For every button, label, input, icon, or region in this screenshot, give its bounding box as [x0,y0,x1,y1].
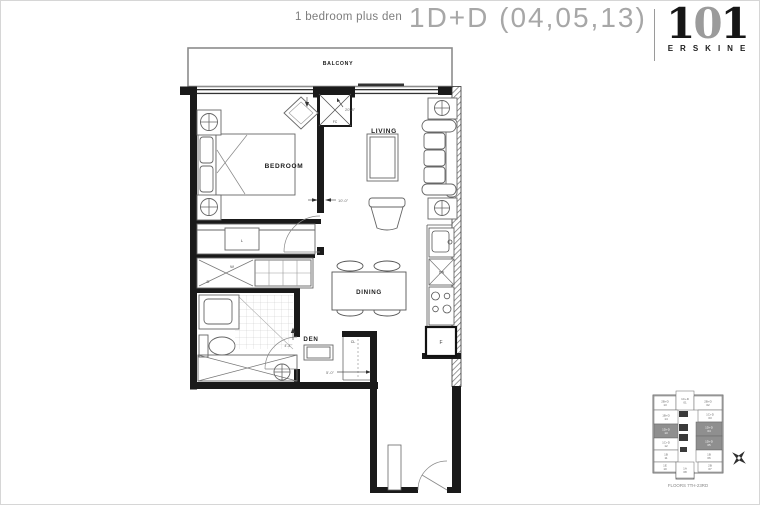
keyplan: 2B+D131C+D012B+D021B+D141C+D031D+D131D+D… [646,386,756,501]
den-depth-dimension: 4'-3" [284,344,292,348]
kitchen-appliances [426,225,456,356]
dining-label: DINING [356,289,382,296]
keyplan-unit-text: 13 [664,431,668,435]
bedroom-furniture [197,97,318,220]
keyplan-unit-text: 10 [663,467,667,471]
living-furniture [367,98,457,230]
balcony-label: BALCONY [323,61,354,67]
keyplan-unit-text: 03 [708,416,712,420]
den-width-dimension: 5'-0" [326,370,335,375]
keyplan-unit-text: 02 [706,403,710,407]
den-entry [274,337,447,490]
keyplan-unit-text: 06 [707,456,711,460]
washer-label: W [230,264,234,269]
fridge-label: F [439,340,442,346]
dryer-label: D [207,279,210,284]
compass-icon [726,445,751,470]
bedroom-dimension: 10'-0" [338,198,349,203]
keyplan-unit-text: 08 [683,470,687,474]
keyplan-unit-text: 07 [708,467,712,471]
keyplan-unit-text: 14 [664,417,668,421]
den-label: DEN [303,336,318,343]
bedroom-label: BEDROOM [265,163,304,170]
floorplan-sheet: 1 bedroom plus den 1D+D (04,05,13) 101 E… [0,0,760,505]
keyplan-unit-text: 12 [664,444,668,448]
keyplan-unit-text: 04 [707,429,711,433]
fan-coil-label: FC [333,120,338,124]
dishwasher-label: DW [439,271,444,275]
living-label: LIVING [371,128,397,135]
living-dimension: 20'-8" [345,107,356,112]
keyplan-unit-text: 11 [664,456,667,460]
balcony-outline [188,48,452,87]
keyplan-unit-text: 05 [707,443,711,447]
keyplan-unit-text: 01 [683,401,687,405]
closet-label: CL [351,340,356,344]
keyplan-unit-text: 13 [663,403,667,407]
keyplan-caption: FLOORS 7TH-23RD [668,483,708,488]
